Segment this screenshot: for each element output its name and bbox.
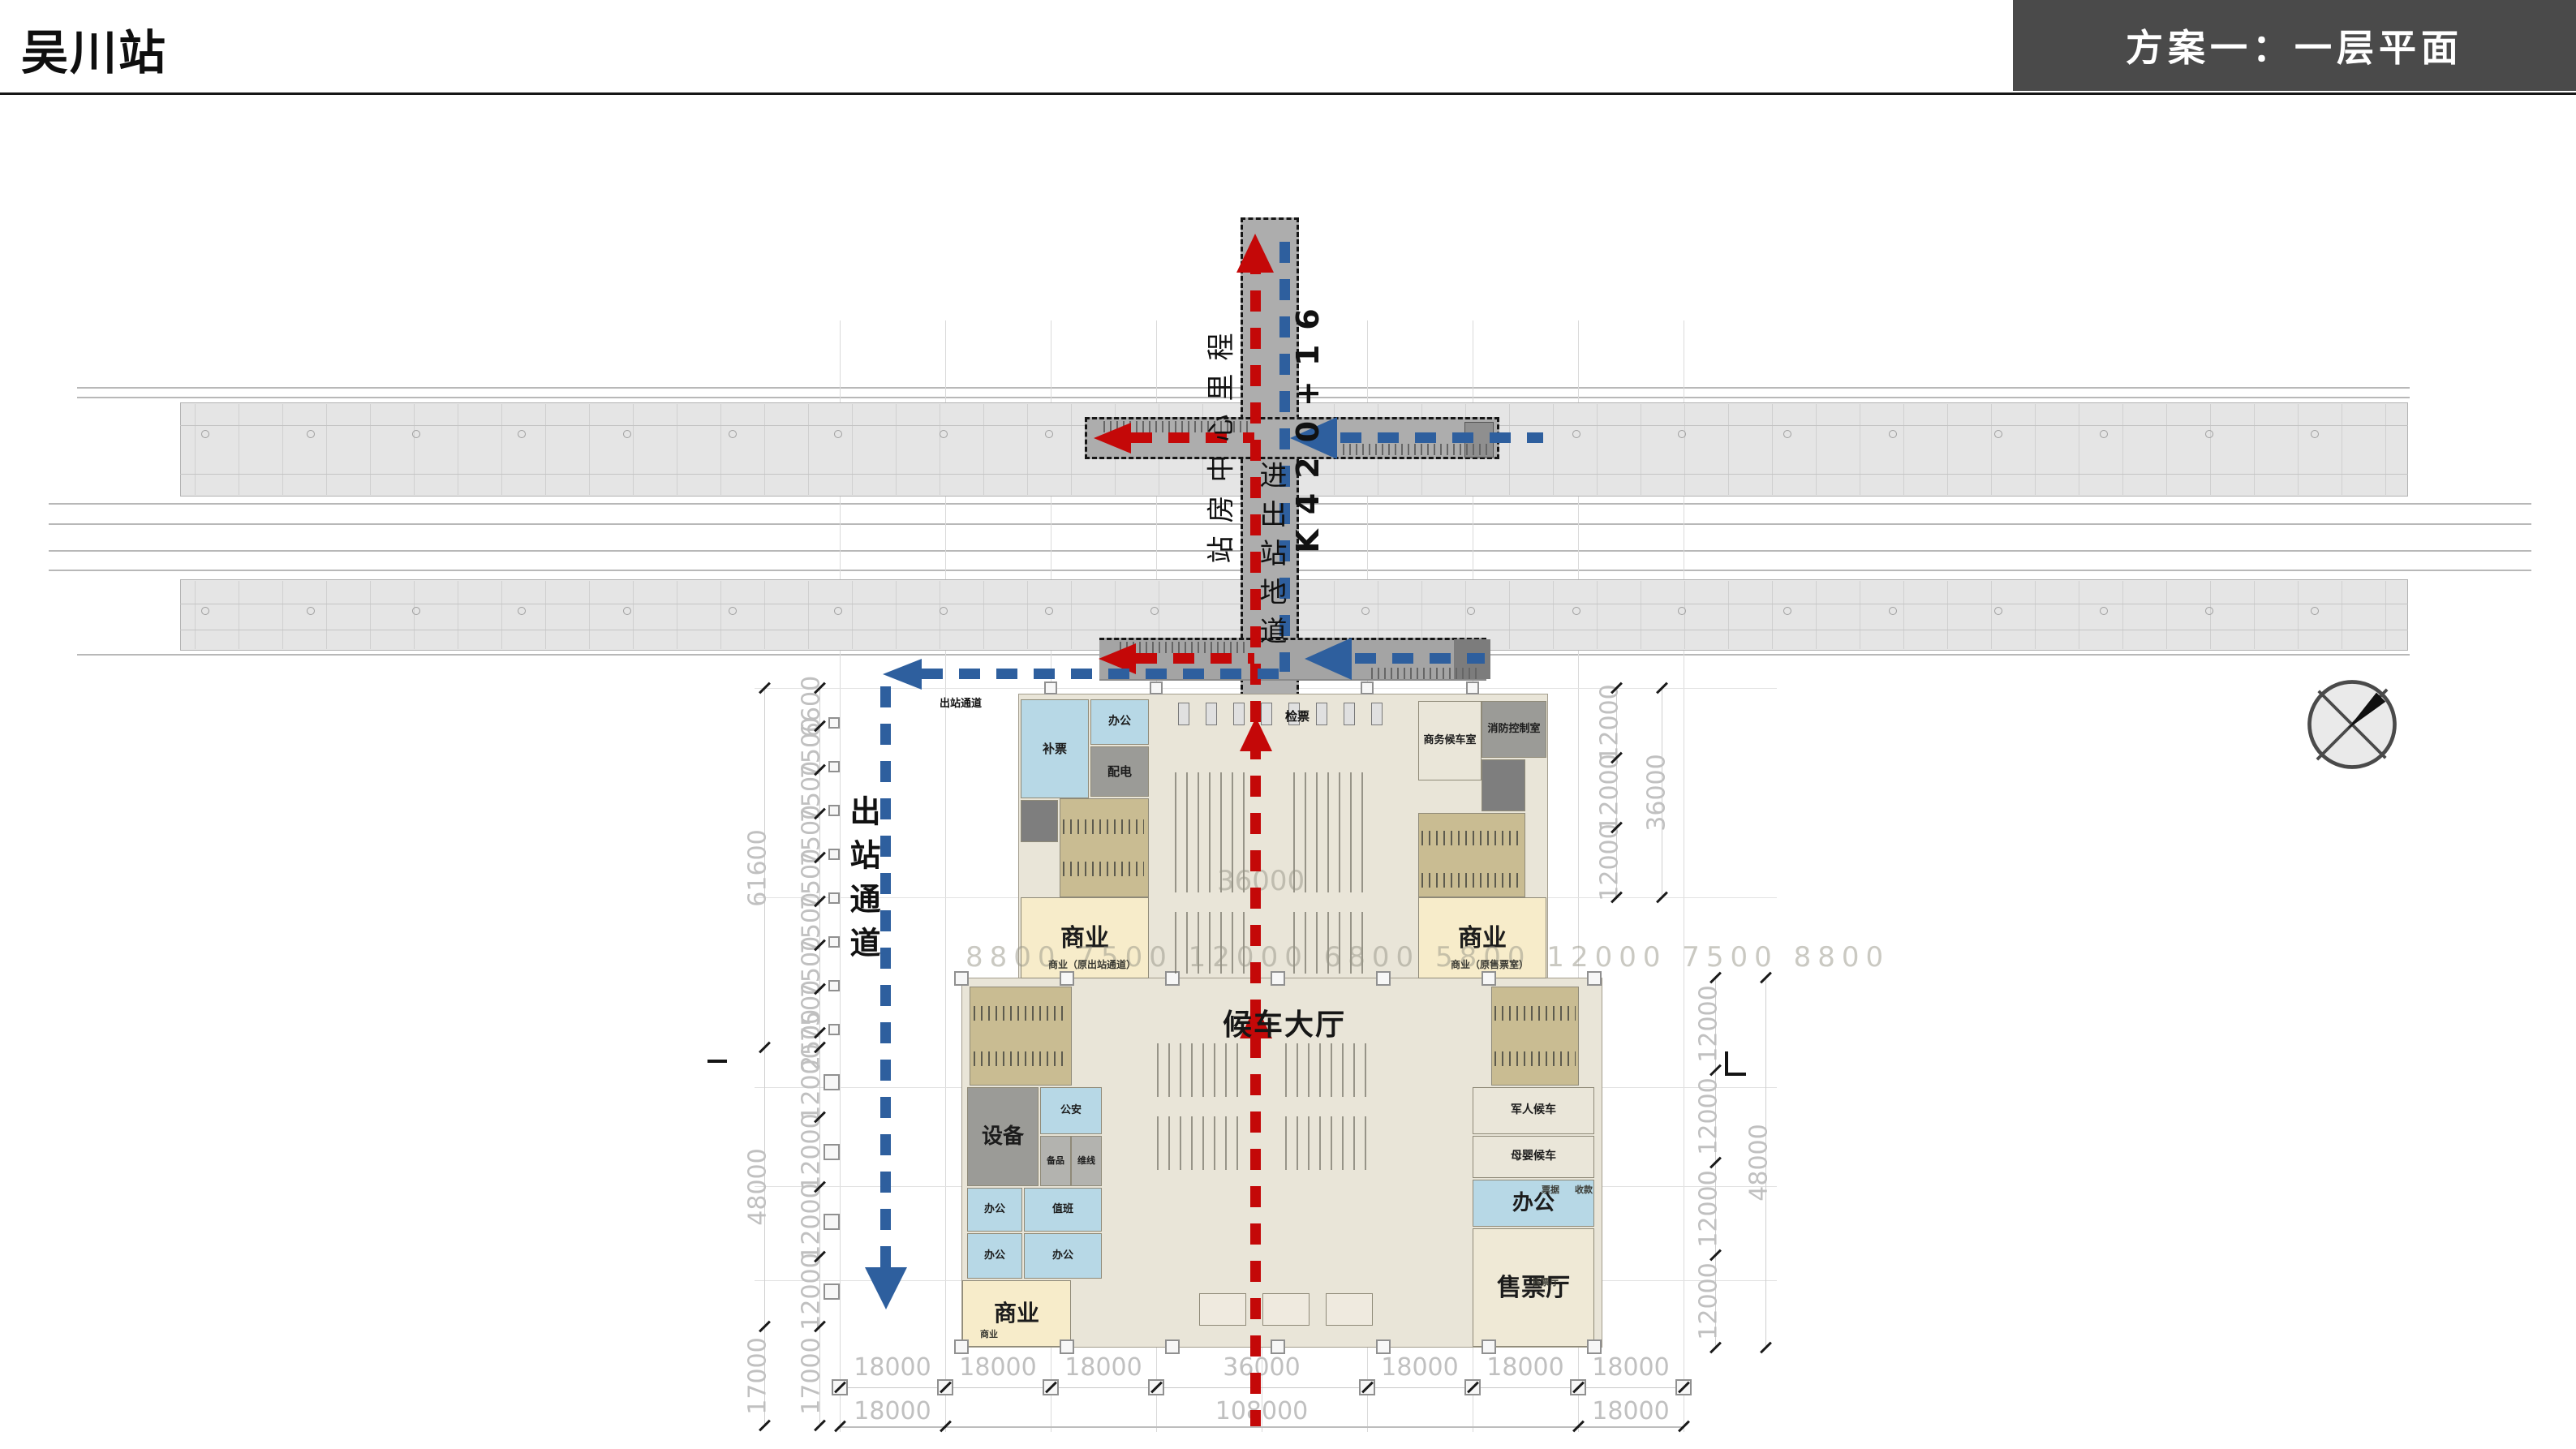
dimension-label: 17000 (744, 1337, 772, 1414)
room-mother-infant-waiting: 母婴候车 (1473, 1136, 1594, 1178)
dimension-label: 108000 (1215, 1397, 1309, 1425)
platform-tick (458, 581, 458, 649)
room-label: 公安 (1060, 1105, 1082, 1116)
column-node (307, 430, 315, 438)
platform-tick (1772, 404, 1773, 495)
column-node (2100, 607, 2108, 615)
platform-tick (1553, 404, 1554, 495)
room-label-shangye-ll-sub: 商业 (980, 1327, 998, 1340)
dimension-label: 36000 (1223, 1353, 1300, 1382)
compass-icon (2291, 664, 2413, 785)
dimension-label: 12000 (1695, 1262, 1723, 1339)
column-node (1783, 607, 1791, 615)
dimension-label: 18000 (1592, 1353, 1669, 1382)
dimension-label: 18000 (1064, 1353, 1142, 1382)
outbound-arrow-left-icon (883, 659, 922, 690)
platform-tick (1860, 581, 1860, 649)
inbound-arrow-left-icon (1094, 423, 1131, 454)
room-shangye-ll: 商业 (962, 1280, 1071, 1347)
platform-tick (2079, 581, 2079, 649)
platform-tick (1903, 404, 1904, 495)
platform-tick (720, 581, 721, 649)
platform-tick (326, 581, 327, 649)
dimension-label: 48000 (1745, 1124, 1774, 1201)
platform-tick (501, 581, 502, 649)
grid-column-square (1361, 682, 1374, 694)
platform-tick (2254, 404, 2255, 495)
dimension-label: 18000 (854, 1397, 931, 1425)
dimension-label: 17000 (798, 1337, 826, 1414)
room-peidian: 配电 (1090, 746, 1149, 797)
platform-tick (2035, 581, 2036, 649)
grid-column-square (824, 1214, 840, 1230)
inbound-arrow-up-icon (1236, 234, 1274, 273)
platform-tick (239, 581, 239, 649)
platform-tick (1728, 581, 1729, 649)
room-label: 配电 (1107, 765, 1132, 779)
room-label: 办公 (984, 1204, 1005, 1215)
stair-hatch (1343, 444, 1489, 455)
room-service-area (1021, 800, 1058, 842)
grid-column-square (828, 805, 840, 816)
grid-column-square (1060, 1339, 1074, 1354)
platform-tick (677, 404, 677, 495)
column-node (1783, 430, 1791, 438)
grid-column-square (828, 717, 840, 729)
column-node (201, 430, 209, 438)
room-label-ticket-hall-sub: 售票厅 (1532, 1275, 1559, 1288)
slide-canvas: 吴川站 方案一：一层平面 站 (0, 0, 2576, 1449)
dimension-label: 36000 (1643, 754, 1671, 831)
room-shangwu-waiting: 商务候车室 (1418, 701, 1482, 780)
platform-tick (1860, 404, 1860, 495)
fixture-rows (974, 1051, 1067, 1066)
dimension-label: 12000 (1695, 1170, 1723, 1247)
column-node (2311, 607, 2319, 615)
column-node (412, 607, 420, 615)
column-node (518, 430, 526, 438)
dimension-label: 12000 (1596, 823, 1624, 901)
column-node (2100, 430, 2108, 438)
inbound-route-lower-arm (1136, 653, 1254, 664)
platform-tick (282, 581, 283, 649)
platform-tick (326, 404, 327, 495)
column-node (940, 607, 948, 615)
platform-tick (195, 404, 196, 495)
room-label: 备品 (1047, 1156, 1064, 1166)
column-node (1572, 430, 1580, 438)
platform-tick (1772, 581, 1773, 649)
platform-tick (852, 404, 853, 495)
platform-tick (677, 581, 677, 649)
room-label-shoukuan: 收款 (1575, 1183, 1593, 1196)
seat-rows (1293, 772, 1371, 892)
grid-column-square (828, 936, 840, 948)
room-label-shangye-ul-sub: 商业（原出站通道） (1048, 957, 1136, 971)
room-label-shangye-ur-sub: 商业（原售票室） (1451, 957, 1529, 971)
ticket-check-label: 检票 (1285, 707, 1310, 724)
column-node (1994, 607, 2002, 615)
dimension-label: 61600 (744, 829, 772, 906)
platform-tick (1597, 404, 1598, 495)
dimension-label: 18000 (854, 1353, 931, 1382)
platform-tick (2298, 581, 2299, 649)
grid-column-square (1165, 1339, 1180, 1354)
platform-tick (983, 581, 984, 649)
dimension-label: 12000 (1695, 985, 1723, 1062)
platform-tick (2166, 404, 2167, 495)
platform-tick (239, 404, 239, 495)
room-bupiao: 补票 (1021, 699, 1089, 798)
platform-tick (2122, 404, 2123, 495)
outbound-arrow-down-icon (865, 1267, 907, 1309)
platform-tick (2342, 404, 2342, 495)
grid-column-square (1150, 682, 1163, 694)
ticket-gate (1344, 703, 1355, 725)
grid-column-square (954, 1339, 969, 1354)
dimension-label: 18000 (1592, 1397, 1669, 1425)
seat-rows (1157, 1116, 1248, 1170)
dimension-label: 12000 (798, 1043, 826, 1120)
outbound-arrow-left-icon (1305, 638, 1352, 680)
platform-tick (764, 404, 765, 495)
platform-tick (1509, 404, 1510, 495)
dim-line (840, 1426, 1684, 1428)
platform-tick (589, 404, 590, 495)
platform-tick (1728, 404, 1729, 495)
platform-tick (2254, 581, 2255, 649)
dimension-label: 12000 (798, 1183, 826, 1260)
platform-tick (2385, 404, 2386, 495)
room-office-a: 办公 (967, 1188, 1022, 1232)
room-zhiban: 值班 (1024, 1188, 1102, 1232)
grid-column-square (1482, 1339, 1496, 1354)
inbound-route-line (1250, 253, 1261, 1426)
grid-column-square (824, 1144, 840, 1160)
column-node (729, 607, 737, 615)
platform-tick (1816, 404, 1817, 495)
platform-tick (1684, 404, 1685, 495)
grid-column-square (1466, 682, 1479, 694)
grid-column-square (828, 892, 840, 904)
room-label: 办公 (984, 1250, 1005, 1262)
grid-column-square (828, 980, 840, 991)
platform-tick (545, 581, 546, 649)
room-label: 维线 (1077, 1156, 1095, 1166)
room-equipment: 设备 (967, 1087, 1039, 1186)
room-military-waiting: 军人候车 (1473, 1087, 1594, 1134)
room-service-area (1060, 798, 1149, 897)
scheme-title-box: 方案一：一层平面 (2013, 0, 2576, 91)
grid-column-square (824, 1074, 840, 1090)
stair-hatch (1371, 668, 1477, 679)
room-label: 办公 (1108, 716, 1131, 728)
dimension-label: 18000 (1486, 1353, 1563, 1382)
platform-tick (633, 581, 634, 649)
column-node (1994, 430, 2002, 438)
mileage-value-label: K420+16 (1290, 221, 1326, 626)
room-weixian: 维线 (1071, 1136, 1102, 1186)
room-label: 商业 (994, 1301, 1039, 1326)
column-node (834, 430, 842, 438)
column-node (307, 607, 315, 615)
fixture-rows (1421, 831, 1519, 845)
room-label: 补票 (1043, 742, 1067, 756)
room-label: 母婴候车 (1511, 1150, 1556, 1163)
platform-tick (896, 581, 897, 649)
room-label: 值班 (1052, 1204, 1073, 1215)
platform-tick (414, 404, 415, 495)
platform-tick (1597, 581, 1598, 649)
platform-tick (545, 404, 546, 495)
platform-tick (1991, 581, 1992, 649)
seat-rows (1285, 1043, 1376, 1097)
column-node (729, 430, 737, 438)
room-label: 消防控制室 (1487, 724, 1540, 735)
grid-column-square (1271, 1339, 1285, 1354)
ticket-gate (1206, 703, 1217, 725)
fixture-rows (1063, 862, 1144, 876)
underpass-label: 进出站地道 (1251, 461, 1291, 656)
room-label-piaoju: 票据 (1542, 1183, 1559, 1196)
platform-tick (1553, 581, 1554, 649)
platform-tick (1027, 581, 1028, 649)
platform-tick (370, 581, 371, 649)
platform-tick (370, 404, 371, 495)
grid-column-square (1376, 1339, 1391, 1354)
room-label: 军人候车 (1511, 1104, 1556, 1116)
exit-passage-label: 出站通道 (841, 795, 885, 970)
column-node (1889, 607, 1897, 615)
outbound-route-upper-arm (1340, 432, 1543, 443)
dimension-label: 12000 (798, 1113, 826, 1190)
platform-tick (1027, 404, 1028, 495)
platform-tick (940, 581, 940, 649)
room-fire-control: 消防控制室 (1482, 701, 1546, 758)
column-node (940, 430, 948, 438)
ticket-gate (1371, 703, 1383, 725)
room-beipin: 备品 (1040, 1136, 1071, 1186)
grid-column-square (828, 1024, 840, 1035)
platform-tick (1816, 581, 1817, 649)
room-service-area (1491, 987, 1579, 1086)
platform-tick (852, 581, 853, 649)
dimension-label: 48000 (744, 1148, 772, 1225)
section-mark-icon (1725, 1051, 1746, 1076)
platform-tick (1947, 404, 1948, 495)
platform-tick (458, 404, 458, 495)
platform-tick (1509, 581, 1510, 649)
platform-tick (1641, 581, 1641, 649)
column-node (1572, 607, 1580, 615)
column-node (1045, 430, 1053, 438)
platform-tick (2342, 581, 2342, 649)
platform-tick (2079, 404, 2079, 495)
dimension-label: 12000 (1695, 1077, 1723, 1154)
room-service-area (1482, 759, 1525, 811)
platform-tick (282, 404, 283, 495)
outbound-exit-route-vertical (880, 686, 891, 1267)
platform-tick (1947, 581, 1948, 649)
platform-tick (808, 404, 809, 495)
header-divider (0, 92, 2576, 95)
exit-passage-small-label: 出站通道 (940, 694, 982, 710)
platform-tick (2122, 581, 2123, 649)
outbound-route-lower-arm (1355, 653, 1485, 664)
section-mark-icon (707, 1060, 727, 1063)
column-node (1045, 607, 1053, 615)
column-node (2205, 430, 2213, 438)
platform-tick (2210, 404, 2211, 495)
column-node (201, 607, 209, 615)
inbound-arrow-up-icon (1240, 717, 1272, 751)
scheme-title: 方案一：一层平面 (2126, 19, 2463, 72)
platform-tick (2210, 581, 2211, 649)
platform-tick (764, 581, 765, 649)
column-node (1678, 607, 1686, 615)
platform-tick (2035, 404, 2036, 495)
dimension-label: 18000 (1381, 1353, 1458, 1382)
room-label: 设备 (982, 1125, 1024, 1149)
platform-tick (896, 404, 897, 495)
outbound-exit-route-horizontal (922, 669, 1293, 679)
column-node (623, 607, 631, 615)
grid-column-square (828, 849, 840, 860)
fixture-rows (1063, 819, 1144, 834)
column-node (2311, 430, 2319, 438)
column-node (1150, 607, 1159, 615)
platform-tick (633, 404, 634, 495)
room-office-c: 办公 (1024, 1233, 1102, 1279)
room-office-b: 办公 (967, 1233, 1022, 1279)
ticket-gate (1178, 703, 1189, 725)
fixture-rows (1494, 1006, 1576, 1021)
platform-tick (1903, 581, 1904, 649)
column-node (412, 430, 420, 438)
platform-tick (1071, 404, 1072, 495)
seat-rows (1285, 1116, 1376, 1170)
column-node (623, 430, 631, 438)
waiting-hall-label: 候车大厅 (1215, 1001, 1353, 1043)
dim-line (764, 688, 765, 1425)
column-node (518, 607, 526, 615)
platform-tick (2166, 581, 2167, 649)
grid-column-square (828, 761, 840, 772)
platform-tick (1991, 404, 1992, 495)
grid-base-line (840, 1387, 1684, 1388)
platform-tick (808, 581, 809, 649)
seat-rows (1157, 1043, 1248, 1097)
platform-tick (1071, 581, 1072, 649)
dimension-label: 12000 (1596, 684, 1624, 761)
room-office-small-ul: 办公 (1090, 699, 1149, 745)
column-node (1678, 430, 1686, 438)
platform-tick (414, 581, 415, 649)
fixture-rows (1421, 873, 1519, 888)
page-title: 吴川站 (21, 15, 167, 83)
room-label: 办公 (1052, 1250, 1073, 1262)
dimension-label: 12000 (1596, 754, 1624, 831)
fixture-rows (974, 1006, 1067, 1021)
column-node (1889, 430, 1897, 438)
grid-column-square (824, 1283, 840, 1300)
entrance-box (1326, 1293, 1373, 1326)
station-center-mileage-label: 站房中心里程 (1199, 239, 1239, 645)
column-node (1361, 607, 1370, 615)
column-node (2205, 607, 2213, 615)
ticket-gate (1316, 703, 1327, 725)
room-label: 商务候车室 (1423, 735, 1476, 746)
platform-tick (2298, 404, 2299, 495)
platform-tick (195, 581, 196, 649)
platform-tick (720, 404, 721, 495)
column-node (1467, 607, 1475, 615)
dimension-label: 12000 (798, 1253, 826, 1330)
dimension-label: 18000 (959, 1353, 1036, 1382)
platform-tick (1684, 581, 1685, 649)
entrance-box (1262, 1293, 1310, 1326)
platform-tick (940, 404, 940, 495)
room-service-area (970, 987, 1072, 1086)
grid-column-square (1044, 682, 1057, 694)
platform-tick (2385, 581, 2386, 649)
room-gongan: 公安 (1040, 1087, 1102, 1134)
ghost-dimension-center: 36000 (1217, 865, 1305, 897)
grid-column-square (1587, 1339, 1602, 1354)
platform-tick (983, 404, 984, 495)
fixture-rows (1494, 1051, 1576, 1066)
platform-tick (589, 581, 590, 649)
entrance-box (1199, 1293, 1246, 1326)
column-node (834, 607, 842, 615)
platform-tick (501, 404, 502, 495)
platform-tick (1641, 404, 1641, 495)
